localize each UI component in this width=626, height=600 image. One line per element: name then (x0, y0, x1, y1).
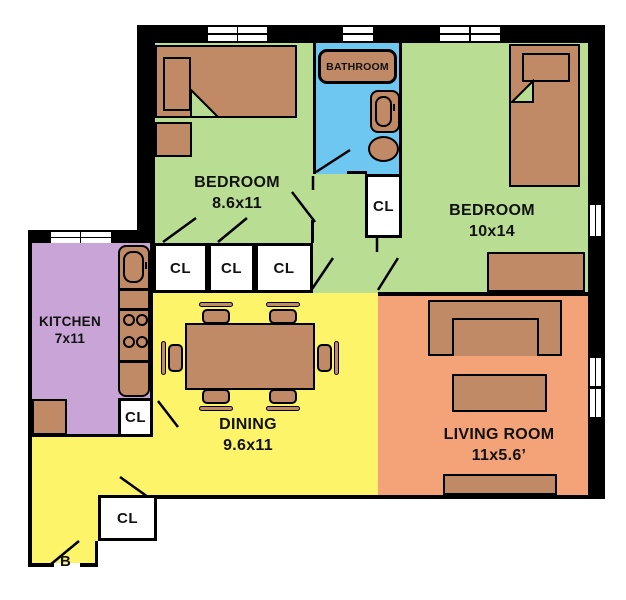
closet-label: CL (117, 510, 138, 527)
wall-bathroom-bottom (347, 171, 367, 174)
room-name: DINING (168, 414, 328, 435)
wall-left-upper (137, 25, 155, 243)
window-pane (51, 238, 80, 243)
closet-bathroom: CL (365, 174, 402, 238)
counter-divider (119, 360, 149, 363)
window-pane (471, 35, 500, 41)
bathroom-sign-label: BATHROOM (326, 61, 389, 73)
bedroom1-label: BEDROOM 8.6x11 (157, 172, 317, 214)
toilet-handle-icon (393, 104, 395, 111)
window-pane (596, 389, 601, 417)
window-pane (208, 35, 237, 41)
entry-door-label: B (60, 553, 71, 570)
closet-label: CL (125, 409, 146, 426)
wall-entry-stub-v (95, 541, 98, 567)
bathroom-sign: BATHROOM (318, 49, 397, 84)
chair-back-icon (199, 406, 233, 411)
window-pane (238, 27, 267, 33)
window-pane (471, 27, 500, 33)
wall-hall-stub (311, 220, 314, 243)
chair-back-icon (266, 406, 300, 411)
dining-table-icon (185, 323, 315, 390)
chair-back-icon (266, 302, 300, 307)
wall-bottom-main (148, 495, 605, 499)
wall-living-top (378, 292, 588, 296)
room-dims: 7x11 (20, 330, 120, 347)
room-name: BEDROOM (157, 172, 317, 193)
chair-icon (202, 309, 230, 324)
closet-hall-3: CL (255, 243, 313, 293)
window-pane (590, 358, 595, 386)
pillow-icon (522, 53, 570, 82)
chair-back-icon (161, 341, 166, 375)
sofa-seat-icon (452, 318, 539, 356)
window-pane (51, 232, 80, 237)
window-pane (596, 205, 601, 236)
wall-right (588, 25, 605, 499)
window-pane (81, 238, 111, 243)
window-pane (238, 35, 267, 41)
console-table-icon (443, 474, 557, 495)
window-pane (343, 35, 373, 41)
coffee-table-icon (452, 374, 547, 412)
window-pane (590, 205, 595, 236)
closet-hall-1: CL (153, 243, 208, 293)
stove-burner-icon (123, 314, 135, 326)
closet-label: CL (274, 260, 295, 277)
window-pane (596, 358, 601, 386)
room-dims: 8.6x11 (157, 193, 317, 214)
wall-bathroom-left (313, 43, 316, 174)
chair-icon (269, 309, 297, 324)
dresser-icon (487, 252, 585, 292)
closet-label: CL (221, 260, 242, 277)
chair-back-icon (334, 341, 339, 375)
window-pane (590, 389, 595, 417)
stove-burner-icon (123, 336, 135, 348)
dining-label: DINING 9.6x11 (168, 414, 328, 456)
closet-label: CL (170, 260, 191, 277)
closet-label: CL (373, 198, 394, 215)
closet-entry: CL (98, 495, 157, 541)
stove-burner-icon (136, 336, 148, 348)
closet-kitchen: CL (118, 398, 153, 437)
chair-back-icon (199, 302, 233, 307)
stove-burner-icon (136, 314, 148, 326)
nightstand-icon (155, 122, 192, 157)
window-pane (440, 27, 469, 33)
apartment-floor-plan: CL CL CL CL CL CL BATHROOM (0, 0, 626, 600)
sink-faucet-icon (145, 262, 147, 269)
window-pane (208, 27, 237, 33)
window-pane (343, 27, 373, 33)
kitchen-label: KITCHEN 7x11 (20, 313, 120, 347)
chair-icon (202, 389, 230, 404)
kitchen-sink-icon (123, 251, 144, 283)
room-name: LIVING ROOM (419, 424, 579, 445)
chair-icon (317, 344, 332, 372)
chair-icon (269, 389, 297, 404)
room-name: BEDROOM (412, 200, 572, 221)
window-pane (440, 35, 469, 41)
toilet-bowl-icon (375, 96, 392, 127)
counter-divider (119, 288, 149, 291)
kitchen-cabinet-icon (32, 399, 67, 435)
room-dims: 9.6x11 (168, 435, 328, 456)
counter-divider (119, 308, 149, 311)
bedroom2-label: BEDROOM 10x14 (412, 200, 572, 242)
wall-bottom-hall (28, 563, 54, 567)
sink-icon (368, 136, 399, 162)
closet-hall-2: CL (208, 243, 255, 293)
chair-icon (168, 344, 183, 372)
window-pane (81, 232, 111, 237)
living-label: LIVING ROOM 11x5.6’ (419, 424, 579, 466)
room-dims: 10x14 (412, 221, 572, 242)
pillow-icon (163, 57, 191, 111)
room-name: KITCHEN (20, 313, 120, 330)
room-dims: 11x5.6’ (419, 445, 579, 466)
